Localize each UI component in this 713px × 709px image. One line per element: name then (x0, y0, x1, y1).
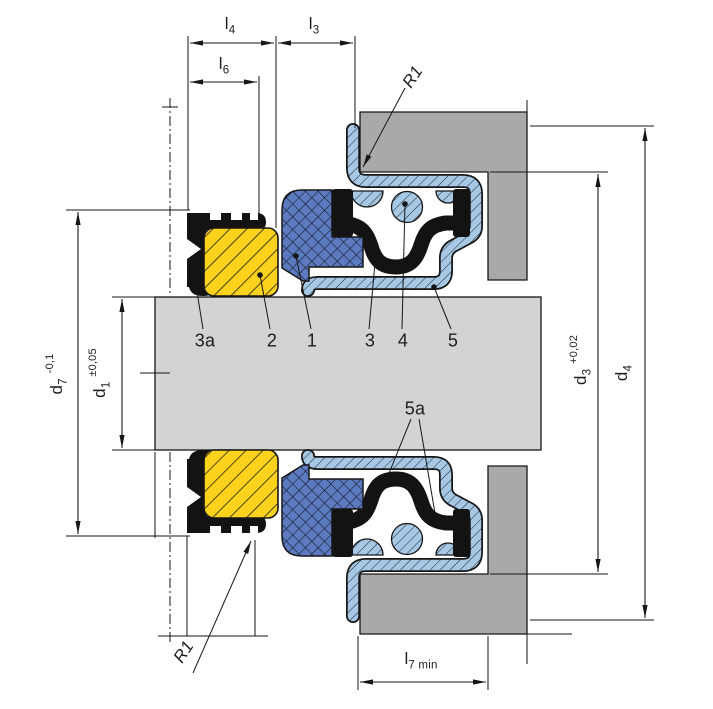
callout-5: 5 (448, 331, 458, 352)
technical-drawing-page: l4 l3 l6 l7 min d7 -0,1 d1 ±0,05 d3 +0,0… (0, 0, 713, 709)
counter-ring-upper (204, 228, 278, 296)
dim-label-d7: d7 -0,1 (47, 354, 67, 395)
drive-lug-upper-left (351, 191, 383, 207)
dim-label-l3: l3 (309, 14, 320, 34)
callout-3a: 3a (195, 331, 215, 352)
drive-lug-lower-left (351, 539, 383, 555)
dim-label-l7-min: l7 min (404, 649, 437, 669)
counter-ring-lower (204, 450, 278, 518)
dim-label-d3: d3 +0,02 (571, 335, 591, 385)
leader-r1-bottom (193, 541, 251, 673)
callout-3: 3 (365, 331, 375, 352)
dim-label-l6: l6 (219, 54, 230, 74)
dim-label-d4: d4 (612, 365, 632, 381)
callout-1: 1 (307, 331, 317, 352)
dim-label-d1: d1 ±0,05 (90, 348, 110, 398)
shaft (155, 297, 541, 450)
callout-4: 4 (398, 331, 408, 352)
spring-section-upper (392, 192, 423, 223)
dim-label-l4: l4 (225, 14, 236, 34)
callout-2: 2 (267, 331, 277, 352)
spring-section-lower (392, 524, 423, 555)
callout-5a: 5a (405, 399, 425, 420)
